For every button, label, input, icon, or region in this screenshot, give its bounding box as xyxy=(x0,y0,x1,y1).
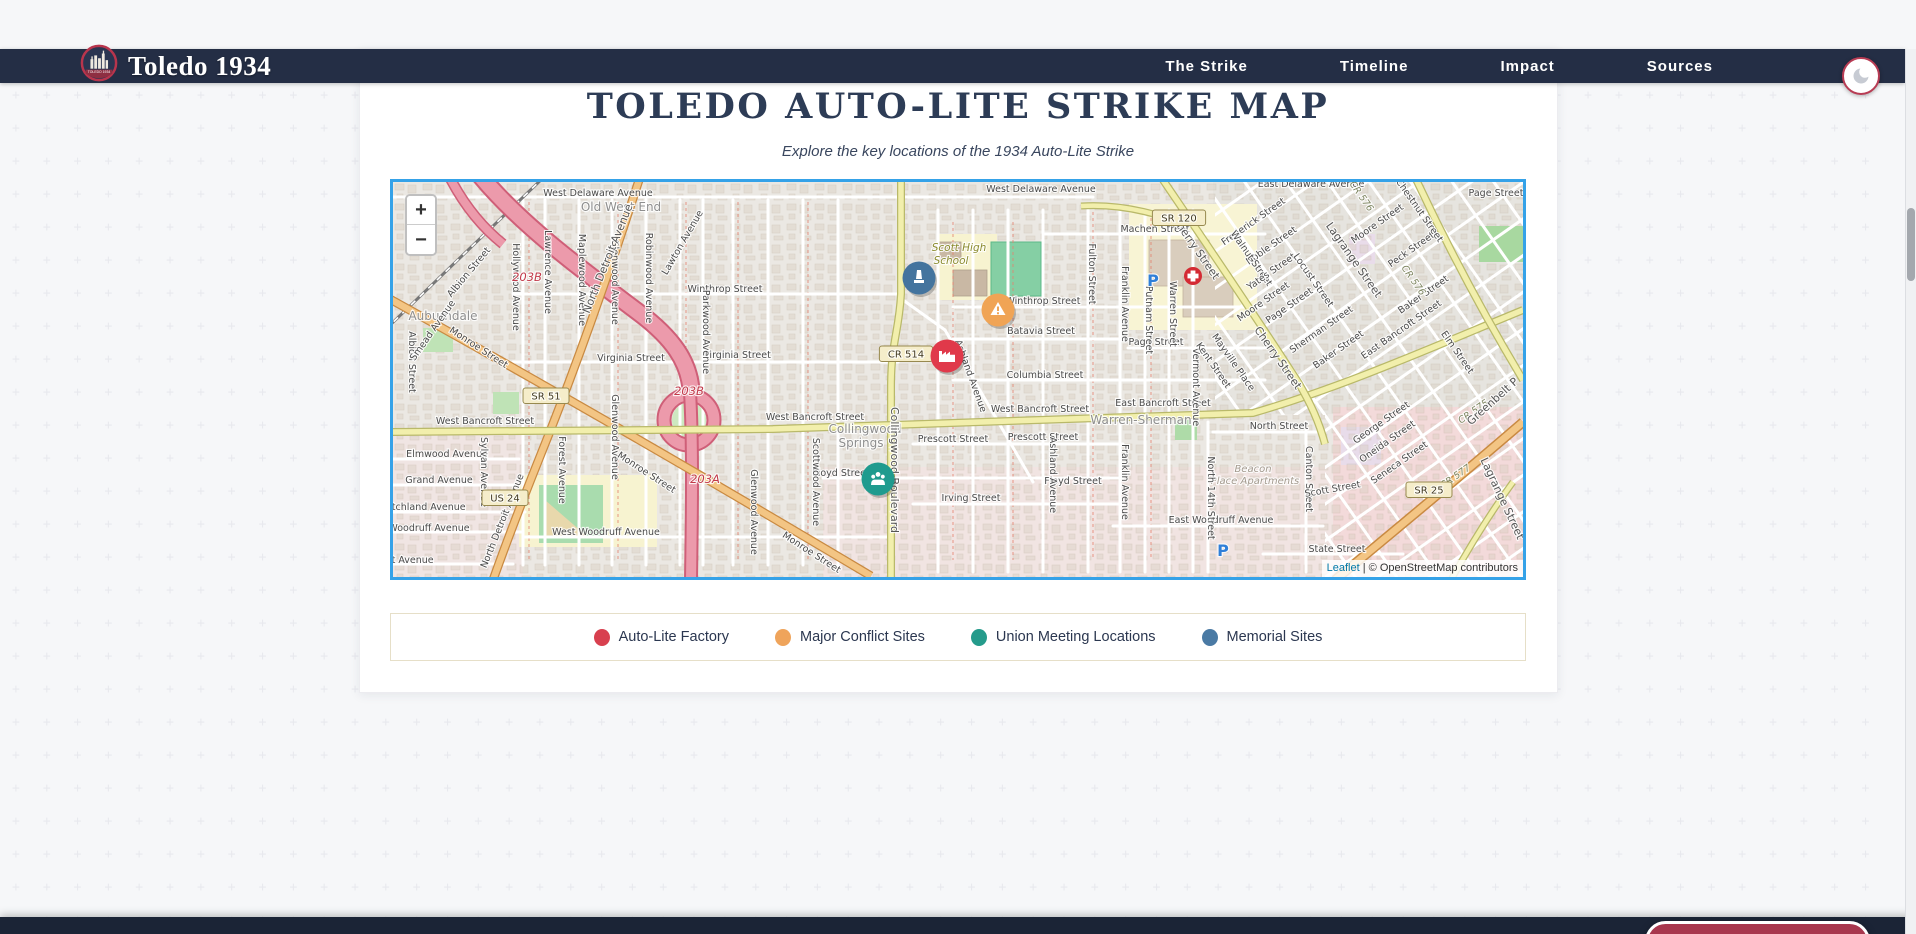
legend-label: Memorial Sites xyxy=(1227,629,1323,645)
legend-item: Union Meeting Locations xyxy=(971,629,1156,646)
map-label: West Woodruff Avenue xyxy=(552,527,660,538)
moon-icon xyxy=(1851,66,1871,86)
map-label: Vermont Avenue xyxy=(1190,348,1201,427)
map-label: State Street xyxy=(1308,544,1365,555)
map-label: Columbia Street xyxy=(1007,370,1084,381)
map-label: Robinwood Avenue xyxy=(643,233,654,324)
map-label: Winthrop Street xyxy=(1005,296,1080,307)
map-zoom-control: + − xyxy=(405,194,437,256)
map-label: Woodruff Avenue xyxy=(393,523,470,534)
nav-links: The StrikeTimelineImpactSources xyxy=(1165,58,1905,75)
road-shield: SR 25 xyxy=(1406,482,1452,498)
map-label: Glenwood Avenue xyxy=(748,469,759,555)
road-shield: CR 514 xyxy=(879,346,932,362)
map-label: East Woodruff Avenue xyxy=(1169,515,1274,526)
map-label: 203B xyxy=(512,270,542,284)
map-label: School xyxy=(934,255,969,267)
svg-text:SR 51: SR 51 xyxy=(531,392,560,403)
map-label: Elmwood Avenue xyxy=(406,449,488,460)
map-label: Virginia Street xyxy=(703,350,771,361)
map-label: Franklin Avenue xyxy=(1119,266,1130,342)
svg-text:US 24: US 24 xyxy=(490,494,520,505)
svg-text:SR 120: SR 120 xyxy=(1161,214,1197,225)
map-label: Hollywood Avenue xyxy=(510,243,521,331)
map-label: Putnam Street xyxy=(1143,286,1154,355)
road-shield: US 24 xyxy=(482,490,528,506)
map-tiles: West Delaware AvenueWest Delaware Avenue… xyxy=(393,182,1523,577)
svg-text:SR 25: SR 25 xyxy=(1414,486,1443,497)
map-label: Place Apartments xyxy=(1211,476,1299,487)
legend-label: Major Conflict Sites xyxy=(800,629,925,645)
map-label: P xyxy=(1147,271,1159,290)
map-label: West Delaware Avenue xyxy=(986,184,1096,195)
svg-text:TOLEDO 1934: TOLEDO 1934 xyxy=(88,70,111,74)
dark-mode-toggle[interactable] xyxy=(1842,57,1880,95)
road-shield: SR 51 xyxy=(523,388,569,404)
map-label: Parkwood Avenue xyxy=(700,290,711,374)
leaflet-map: West Delaware AvenueWest Delaware Avenue… xyxy=(390,179,1526,580)
legend-item: Memorial Sites xyxy=(1202,629,1323,646)
page-subtitle: Explore the key locations of the 1934 Au… xyxy=(360,143,1557,160)
top-navbar: TOLEDO 1934 Toledo 1934 The StrikeTimeli… xyxy=(0,49,1905,83)
map-label: Fulton Street xyxy=(1086,243,1097,304)
map-label: Prescott Street xyxy=(1008,432,1079,443)
svg-text:CR 514: CR 514 xyxy=(888,350,924,361)
map-label: Springs xyxy=(839,436,884,450)
map-label: West Delaware Avenue xyxy=(543,188,653,199)
map-card: TOLEDO AUTO-LITE STRIKE MAP Explore the … xyxy=(359,49,1558,693)
brand-name: Toledo 1934 xyxy=(128,51,271,82)
map-label: Prescott Street xyxy=(918,434,989,445)
map-attribution: Leaflet | © OpenStreetMap contributors xyxy=(1322,560,1523,577)
map-legend: Auto-Lite FactoryMajor Conflict SitesUni… xyxy=(390,613,1526,661)
toledo-1934-logo-icon: TOLEDO 1934 xyxy=(80,44,118,82)
brand[interactable]: TOLEDO 1934 Toledo 1934 xyxy=(80,50,271,82)
map-label: Scottwood Avenue xyxy=(810,438,821,526)
map-label: Warren Street xyxy=(1167,281,1178,347)
leaflet-link[interactable]: Leaflet xyxy=(1327,562,1360,574)
legend-dot-icon xyxy=(594,629,610,646)
map-label: West Bancroft Street xyxy=(991,404,1090,415)
map-label: Irving Street xyxy=(942,493,1001,504)
map-label: Ashland Avenue xyxy=(1047,437,1058,513)
map-label: ct Avenue xyxy=(393,555,434,566)
footer xyxy=(0,917,1916,934)
legend-dot-icon xyxy=(971,629,987,646)
map-label: Beacon xyxy=(1234,464,1271,475)
map-label: Franklin Avenue xyxy=(1119,444,1130,520)
map-label: 203B xyxy=(674,384,704,398)
zoom-in-button[interactable]: + xyxy=(407,196,435,225)
legend-label: Union Meeting Locations xyxy=(996,629,1156,645)
page-scrollbar xyxy=(1905,49,1916,934)
map-canvas[interactable]: West Delaware AvenueWest Delaware Avenue… xyxy=(393,182,1523,577)
legend-item: Major Conflict Sites xyxy=(775,629,925,646)
osm-link[interactable]: © OpenStreetMap contributors xyxy=(1369,562,1518,574)
map-label: Forest Avenue xyxy=(556,436,567,504)
map-label: Winthrop Street xyxy=(687,284,762,295)
nav-link-sources[interactable]: Sources xyxy=(1647,58,1713,75)
map-label: North 14th Street xyxy=(1205,456,1216,540)
nav-link-impact[interactable]: Impact xyxy=(1500,58,1554,75)
scrollbar-thumb[interactable] xyxy=(1907,208,1915,281)
map-label: Page Street xyxy=(1469,188,1523,199)
map-label: Batavia Street xyxy=(1007,326,1075,337)
zoom-out-button[interactable]: − xyxy=(407,225,435,254)
map-label: North Street xyxy=(1250,421,1309,432)
test-your-knowledge-button[interactable]: Test Your Knowledge! xyxy=(1645,921,1870,934)
map-label: Grand Avenue xyxy=(405,475,473,486)
map-label: Fitchland Avenue xyxy=(393,502,466,513)
map-label: 203A xyxy=(690,472,720,486)
legend-item: Auto-Lite Factory xyxy=(594,629,729,646)
map-label: P xyxy=(1217,541,1229,560)
map-label: Scott High xyxy=(932,242,987,254)
map-label: Lawrence Avenue xyxy=(542,230,553,314)
hospital-icon xyxy=(1184,267,1202,285)
map-label: Glenwood Avenue xyxy=(609,394,620,480)
map-label: Virginia Street xyxy=(597,353,665,364)
nav-link-the-strike[interactable]: The Strike xyxy=(1165,58,1248,75)
map-label: Warren-Sherman xyxy=(1090,413,1191,427)
map-label: West Bancroft Street xyxy=(436,416,535,427)
legend-dot-icon xyxy=(775,629,791,646)
legend-dot-icon xyxy=(1202,629,1218,646)
road-shield: SR 120 xyxy=(1152,210,1205,226)
map-label: Canton Street xyxy=(1303,446,1314,512)
legend-label: Auto-Lite Factory xyxy=(619,629,729,645)
attribution-separator: | xyxy=(1360,562,1369,574)
nav-link-timeline[interactable]: Timeline xyxy=(1340,58,1409,75)
